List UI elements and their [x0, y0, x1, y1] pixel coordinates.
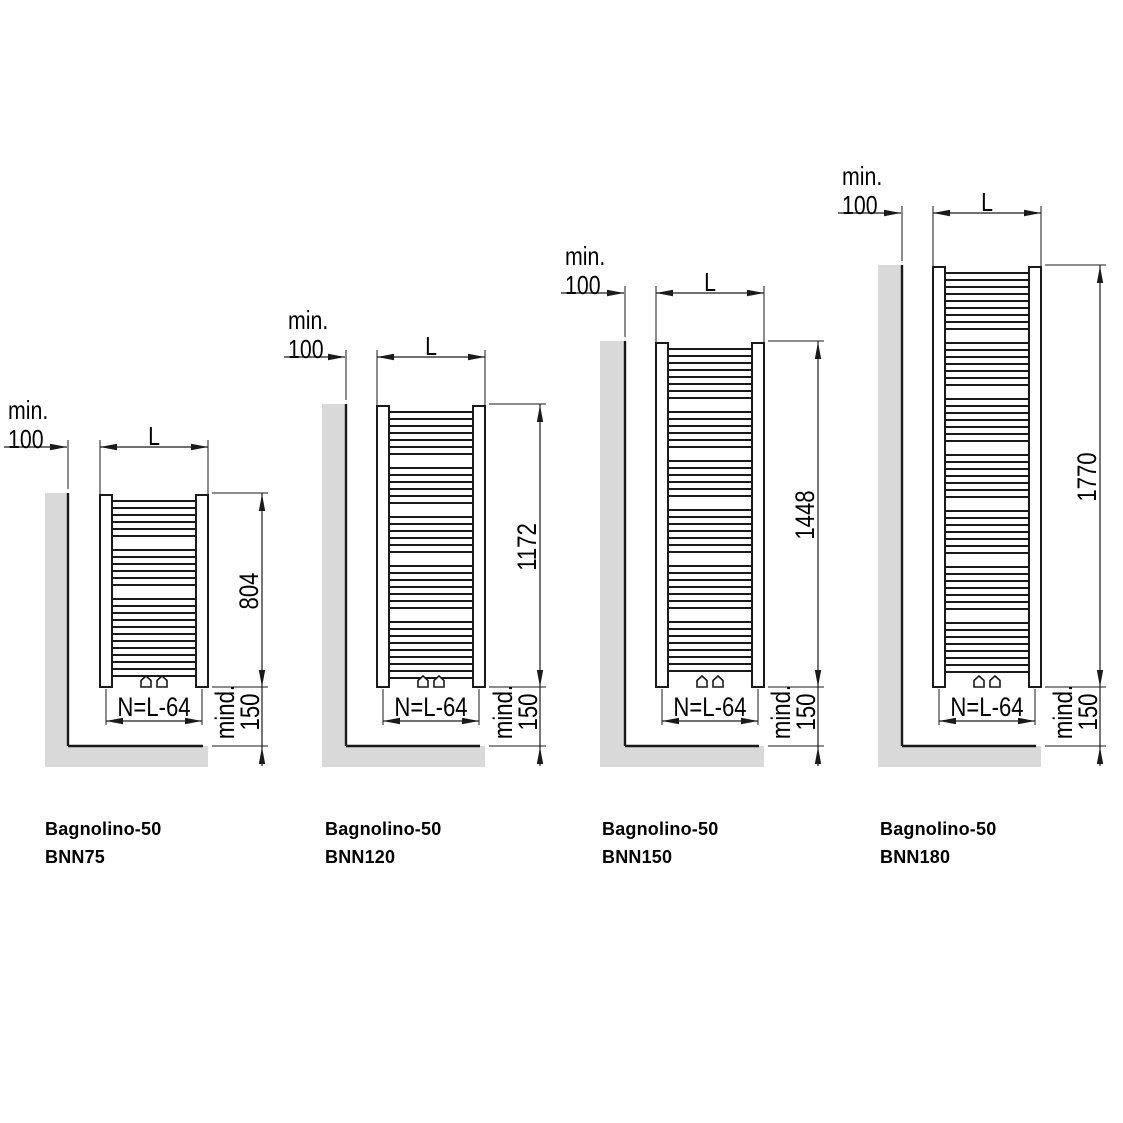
height-arrow-top — [1097, 266, 1103, 283]
min-clearance-label: min. — [8, 397, 48, 424]
span-dim-label: N=L-64 — [117, 693, 190, 721]
floor-clearance-arrow — [815, 747, 821, 764]
product-model: BNN75 — [45, 848, 105, 867]
radiator-diagrams-svg — [0, 0, 1123, 1123]
radiator-collector-left — [656, 343, 668, 687]
radiator-collector-left — [100, 495, 112, 687]
radiator-collector-right — [473, 406, 485, 687]
min-clearance-label: min. — [288, 307, 328, 334]
min-clearance-value: 100 — [565, 272, 601, 299]
valve-icon — [157, 676, 167, 687]
floor-clearance-value: 150 — [236, 694, 264, 731]
product-series: Bagnolino-50 — [325, 820, 441, 839]
span-dim-label: N=L-64 — [950, 693, 1023, 721]
height-dim-value: 804 — [235, 573, 263, 610]
floor-clearance-arrow — [1097, 747, 1103, 764]
valve-icon — [141, 676, 151, 687]
floor-clearance-value: 150 — [514, 694, 542, 731]
height-arrow-top — [815, 342, 821, 359]
wall-surface — [45, 493, 208, 767]
valve-icon — [990, 676, 1000, 687]
product-model: BNN180 — [880, 848, 950, 867]
height-dim-value: 1770 — [1073, 452, 1101, 501]
product-series: Bagnolino-50 — [880, 820, 996, 839]
valve-icon — [974, 676, 984, 687]
floor-clearance-arrow — [259, 747, 265, 764]
technical-drawing-canvas: min.100L804N=L-64mind.150Bagnolino-50BNN… — [0, 0, 1123, 1123]
radiator-collector-right — [752, 343, 764, 687]
height-arrow-bottom — [259, 670, 265, 687]
product-series: Bagnolino-50 — [45, 820, 161, 839]
min-clearance-arrow — [884, 210, 901, 216]
valve-icon — [713, 676, 723, 687]
height-arrow-top — [537, 405, 543, 422]
min-clearance-arrow — [328, 354, 345, 360]
floor-clearance-value: 150 — [792, 694, 820, 731]
min-clearance-arrow — [607, 290, 624, 296]
min-clearance-label: min. — [842, 163, 882, 190]
radiator-collector-right — [196, 495, 208, 687]
product-series: Bagnolino-50 — [602, 820, 718, 839]
height-arrow-top — [259, 494, 265, 511]
width-dim-label: L — [704, 269, 716, 296]
radiator-collector-right — [1029, 267, 1041, 687]
width-arrow-right — [468, 354, 485, 360]
width-dim-label: L — [425, 333, 437, 360]
product-model: BNN150 — [602, 848, 672, 867]
min-clearance-value: 100 — [842, 192, 878, 219]
width-arrow-left — [377, 354, 394, 360]
span-dim-label: N=L-64 — [394, 693, 467, 721]
height-arrow-bottom — [1097, 670, 1103, 687]
valve-icon — [697, 676, 707, 687]
min-clearance-value: 100 — [8, 426, 44, 453]
min-clearance-value: 100 — [288, 336, 324, 363]
radiator-collector-left — [377, 406, 389, 687]
width-arrow-right — [191, 444, 208, 450]
radiator-collector-left — [933, 267, 945, 687]
width-dim-label: L — [981, 189, 993, 216]
width-arrow-left — [656, 290, 673, 296]
floor-clearance-value: 150 — [1074, 694, 1102, 731]
min-clearance-arrow — [50, 444, 67, 450]
width-arrow-left — [100, 444, 117, 450]
min-clearance-label: min. — [565, 243, 605, 270]
floor-clearance-arrow — [537, 747, 543, 764]
span-dim-label: N=L-64 — [673, 693, 746, 721]
width-arrow-right — [747, 290, 764, 296]
height-arrow-bottom — [537, 670, 543, 687]
height-dim-value: 1172 — [513, 523, 541, 571]
height-dim-value: 1448 — [791, 490, 819, 539]
width-arrow-left — [933, 210, 950, 216]
width-dim-label: L — [148, 423, 160, 450]
product-model: BNN120 — [325, 848, 395, 867]
height-arrow-bottom — [815, 670, 821, 687]
width-arrow-right — [1024, 210, 1041, 216]
